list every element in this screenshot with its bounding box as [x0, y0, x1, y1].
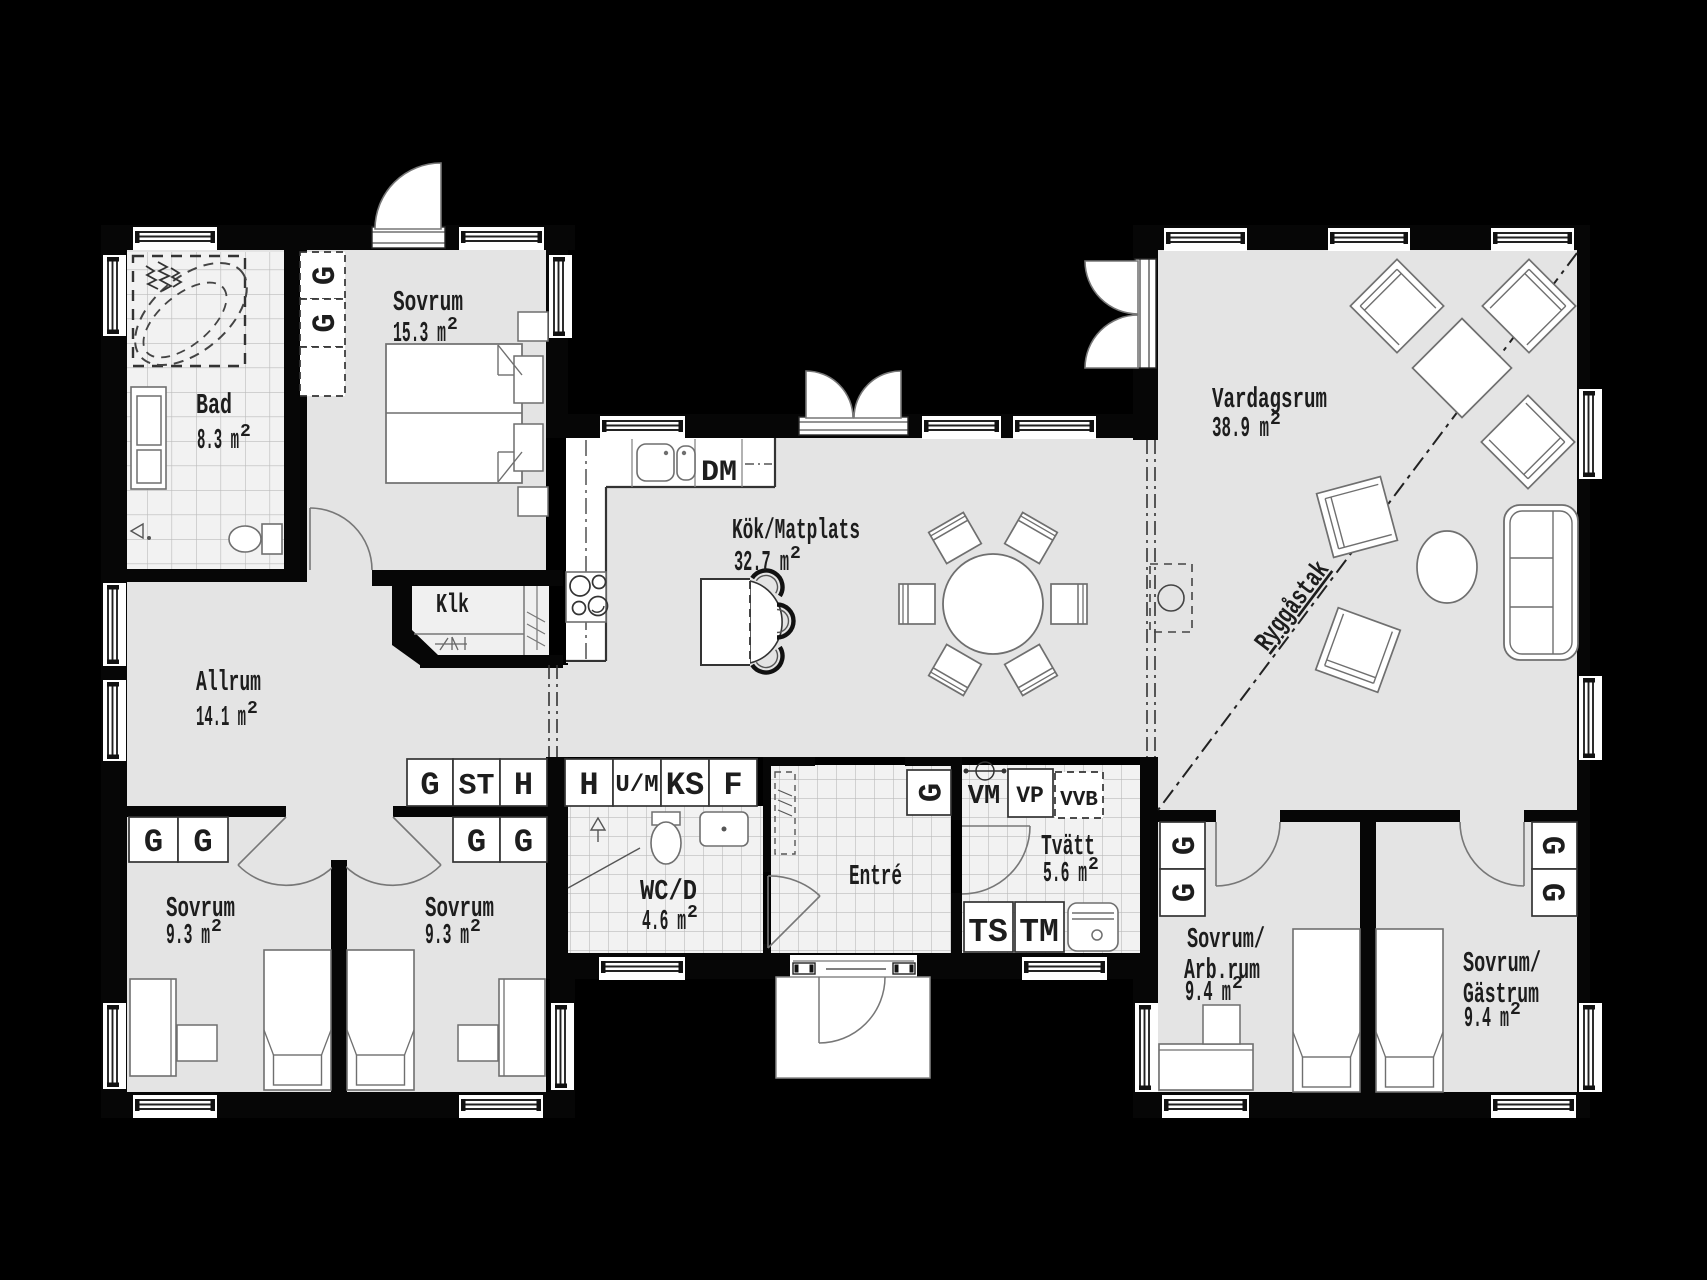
svg-text:G: G [193, 824, 212, 861]
svg-text:2: 2 [1232, 974, 1243, 994]
svg-text:Bad: Bad [196, 389, 232, 422]
svg-text:Klk: Klk [436, 591, 469, 621]
svg-text:2: 2 [247, 699, 258, 719]
svg-text:2: 2 [1088, 855, 1099, 875]
svg-text:G: G [467, 824, 486, 861]
svg-text:2: 2 [240, 422, 251, 442]
svg-text:32.7 m: 32.7 m [734, 546, 789, 579]
svg-text:9.3 m: 9.3 m [425, 919, 469, 952]
svg-text:G: G [307, 266, 344, 285]
svg-text:15.3 m: 15.3 m [393, 317, 446, 350]
svg-text:38.9 m: 38.9 m [1212, 412, 1269, 445]
svg-text:ST: ST [458, 769, 494, 803]
svg-text:G: G [1533, 836, 1570, 855]
svg-text:9.3 m: 9.3 m [166, 919, 210, 952]
svg-text:KS: KS [666, 767, 704, 804]
svg-text:G: G [307, 313, 344, 332]
svg-text:VM: VM [968, 782, 1000, 812]
svg-text:TM: TM [1019, 914, 1059, 951]
svg-text:5.6 m: 5.6 m [1043, 857, 1087, 890]
svg-text:G: G [514, 824, 533, 861]
svg-text:U/M: U/M [615, 772, 658, 799]
svg-text:Sovrum/: Sovrum/ [1187, 923, 1265, 956]
svg-text:2: 2 [1270, 410, 1281, 430]
svg-text:2: 2 [1510, 1000, 1521, 1020]
svg-text:14.1 m: 14.1 m [196, 701, 246, 734]
svg-text:Allrum: Allrum [196, 666, 261, 699]
svg-text:G: G [420, 767, 439, 804]
svg-text:VVB: VVB [1060, 789, 1098, 812]
svg-text:H: H [514, 767, 533, 804]
svg-text:VP: VP [1016, 783, 1044, 809]
svg-text:8.3 m: 8.3 m [197, 424, 239, 457]
svg-text:2: 2 [470, 917, 481, 937]
svg-text:DM: DM [701, 456, 737, 490]
svg-text:2: 2 [687, 903, 698, 923]
svg-text:2: 2 [447, 315, 458, 335]
svg-text:TS: TS [968, 914, 1008, 951]
svg-text:F: F [723, 767, 742, 804]
svg-text:G: G [1533, 883, 1570, 902]
svg-text:G: G [914, 783, 951, 802]
svg-text:9.4 m: 9.4 m [1185, 976, 1231, 1009]
svg-text:2: 2 [211, 917, 222, 937]
svg-text:9.4 m: 9.4 m [1464, 1002, 1509, 1035]
svg-text:G: G [1167, 836, 1204, 855]
svg-text:G: G [1167, 883, 1204, 902]
svg-text:Kök/Matplats: Kök/Matplats [732, 514, 860, 547]
svg-text:G: G [144, 824, 163, 861]
svg-text:4.6 m: 4.6 m [642, 905, 686, 938]
svg-text:Entré: Entré [849, 860, 902, 893]
svg-text:2: 2 [790, 544, 801, 564]
svg-text:Sovrum/: Sovrum/ [1463, 947, 1541, 980]
svg-text:H: H [579, 767, 598, 804]
